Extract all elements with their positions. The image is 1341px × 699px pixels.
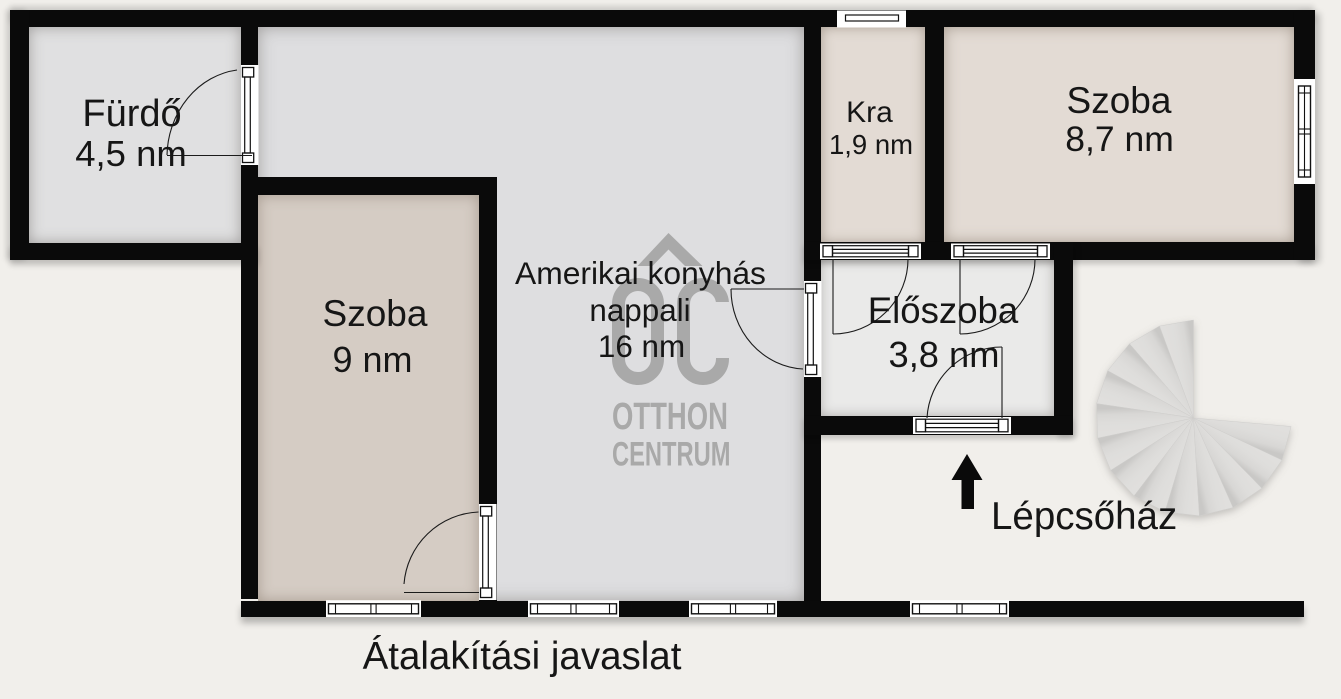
svg-text:OTTHON: OTTHON xyxy=(612,396,728,438)
svg-text:CENTRUM: CENTRUM xyxy=(612,436,731,474)
